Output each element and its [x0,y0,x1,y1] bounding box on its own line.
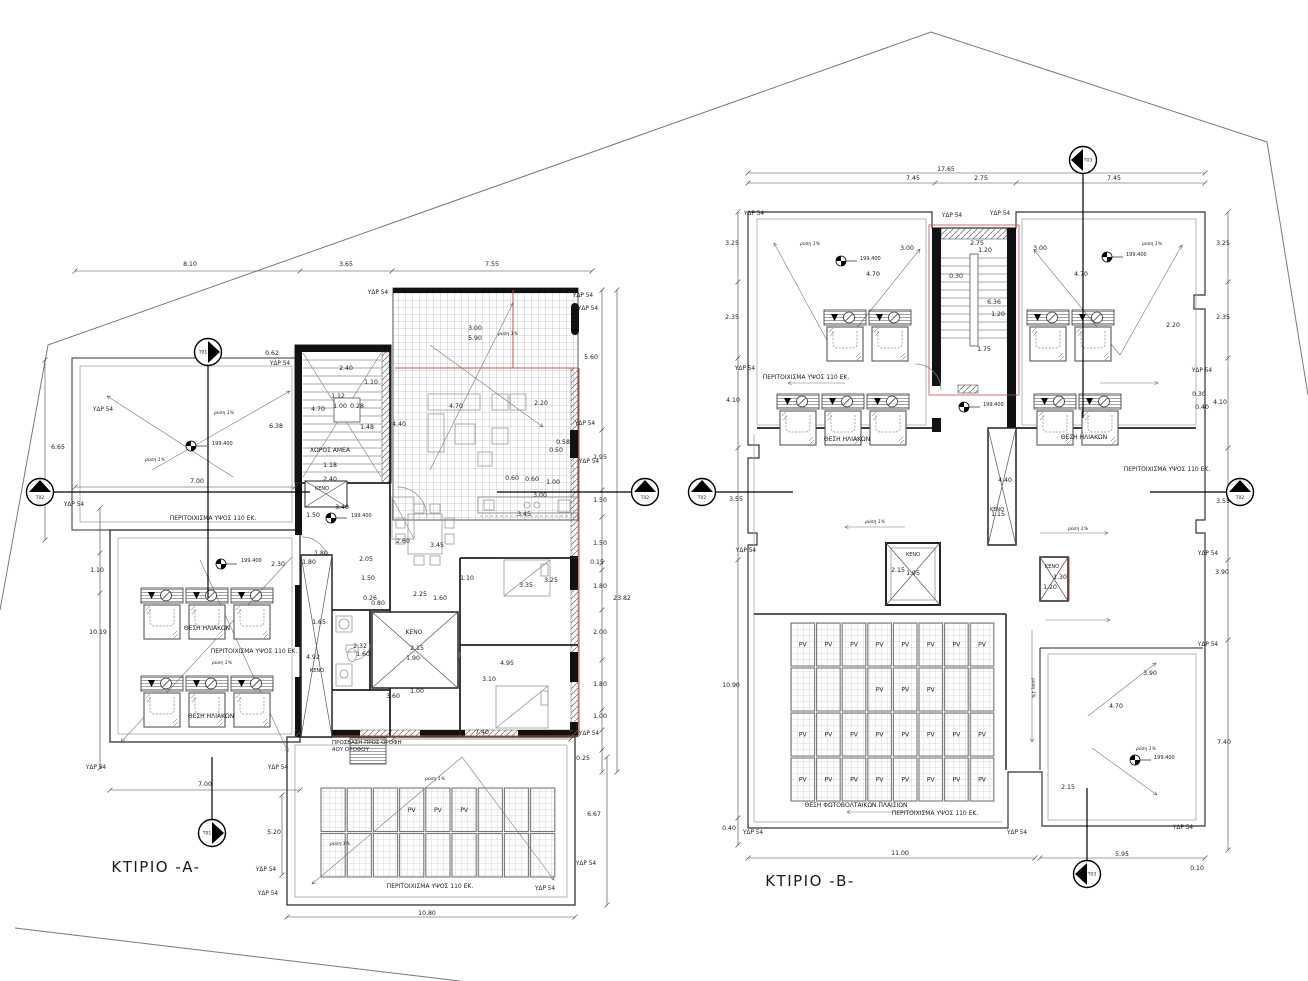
dimension-label: 3.65 [339,261,353,268]
hydrant-label: ΥΔΡ 54 [577,306,599,312]
dimension-label: 0.40 [722,825,736,832]
pv-panel-cell [426,834,450,878]
dimension-label: 1.00 [410,688,424,695]
pv-label: PV [927,732,936,739]
hydrant-label: ΥΔΡ 54 [85,765,107,771]
dimension-label: 7.00 [190,478,204,485]
floor-plan-sheet: PVPVPVPVPVPVPVPVPVPVPVPVPVPVPVPVPVPVPVPV… [0,0,1308,981]
slope-label: ρύση 1% [425,775,445,782]
dimension-label: 0.10 [1190,865,1204,872]
dimension-label: 6.67 [587,811,601,818]
section-marker-τ01: Τ01 [199,757,226,847]
area-label: ΚΕΝΟ [906,552,920,558]
dimension-label: 4.70 [311,406,325,413]
slope-label: ρύση 1% [800,240,820,247]
dimension-label: 4.70 [1074,271,1088,278]
slope-label: ρύση 1% [1142,240,1162,247]
area-label: ΧΩΡΟΣ ΑΜΕΑ [310,447,351,454]
hydrant-label: ΥΔΡ 54 [578,459,600,465]
dimension-label: 3.00 [900,245,914,252]
hydrant-label: ΥΔΡ 54 [941,213,963,219]
benchmark-icon [186,441,207,451]
pv-label: PV [825,642,834,649]
pv-panel-cell [817,668,841,711]
dimension-label: 1.50 [361,575,375,582]
section-marker-label: Τ02 [1235,495,1245,501]
dimension-label: 8.10 [183,261,197,268]
dimension-label: 1.75 [977,346,991,353]
hydrant-label: ΥΔΡ 54 [743,211,765,217]
dimension-label: 1.80 [593,681,607,688]
dimension-label: 3.00 [1033,245,1047,252]
dimension-label: 4.70 [1109,703,1123,710]
dimension-label: 4.10 [1213,399,1227,406]
dimension-label: 3.00 [533,492,547,499]
solar-heater-icon [231,676,273,727]
dimension-lines [43,171,1231,920]
solar-heater-icon [1072,310,1114,361]
hydrant-label: ΥΔΡ 54 [1172,825,1194,831]
dimension-label: 10.80 [418,910,436,917]
pv-panel-cell [321,788,345,832]
pv-label: PV [825,777,834,784]
dimension-label: 7.40 [1217,739,1231,746]
area-label: ΚΕΝΟ [1045,564,1059,570]
pv-label: PV [850,777,859,784]
pv-panel-cell [531,788,555,832]
dimension-label: 2.20 [534,400,548,407]
pv-label: PV [876,642,885,649]
dimension-label: 2.60 [396,538,410,545]
pv-label: PV [408,807,417,814]
dimension-line [615,288,620,775]
pv-label: PV [901,777,910,784]
elevation-label: 199.400 [983,402,1004,408]
pv-panel-cell [970,668,994,711]
hydrant-label: ΥΔΡ 54 [1197,551,1219,557]
dimension-label: 0.15 [590,559,604,566]
hydrant-label: ΥΔΡ 54 [92,407,114,413]
dimension-label: 1.80 [314,550,328,557]
pv-panel-cell [531,834,555,878]
area-label: 4ΟΥ ΟΡΟΦΟΥ [332,747,370,753]
dimension-line [1226,210,1231,853]
area-label: ΘΕΣΗ ΗΛΙΑΚΩΝ [824,436,870,443]
dimension-label: 1.50 [306,512,320,519]
dimension-label: 3.45 [517,511,531,518]
dimension-label: 4.92 [306,654,320,661]
dimension-label: 2.20 [1166,322,1180,329]
dimension-label: 6.65 [51,444,65,451]
solar-heater-icon [824,310,866,361]
dimension-label: 0.62 [265,350,279,357]
pv-panel-cell [504,834,528,878]
dimension-label: 5.90 [468,335,482,342]
pv-panel-cell [373,834,397,878]
dimension-label: 1.48 [360,424,374,431]
dimension-label: 2.40 [323,476,337,483]
pv-panel-cell [373,788,397,832]
dimension-label: 2.35 [1216,314,1230,321]
pv-label: PV [825,732,834,739]
area-label: ΠΡΟΣΒΑΣΗ ΠΡΟΣ ΟΡΟΦΗ [332,740,402,746]
dimension-label: 5.20 [267,829,281,836]
dimension-line [605,755,610,908]
dimension-label: 2.75 [970,240,984,247]
elevation-label: 199.400 [351,513,372,519]
dimension-label: 4.40 [998,477,1012,484]
dimension-label: 7.55 [485,261,499,268]
pv-label: PV [460,807,469,814]
section-marker-label: Τ02 [640,495,650,501]
dimension-line [73,485,298,490]
dimension-label: 4.70 [866,271,880,278]
hydrant-label: ΥΔΡ 54 [534,886,556,892]
building-b-title: ΚΤΙΡΙΟ -B- [765,872,855,890]
keno-shafts-b [886,428,1069,605]
pv-label: PV [850,642,859,649]
dimension-label: 0.60 [525,476,539,483]
dimension-label: 1.00 [546,479,560,486]
pv-label: PV [434,807,443,814]
area-label: ΚΕΝΟ [310,668,324,674]
section-marker-τ03: Τ03 [1070,147,1097,419]
hydrant-label: ΥΔΡ 54 [989,211,1011,217]
area-label: ΠΕΡΙΤΟΙΧΙΣΜΑ ΥΨΟΣ 110 ΕΚ. [892,810,979,817]
hydrant-label: ΥΔΡ 54 [572,293,594,299]
pv-label: PV [901,687,910,694]
pv-panel-cell [504,788,528,832]
dimension-label: 2.15 [410,645,424,652]
pv-label: PV [927,687,936,694]
dimension-label: 2.15 [891,567,905,574]
slope-label: ρύση 1% [1030,678,1037,698]
dimension-label: 2.15 [1061,784,1075,791]
pv-label: PV [953,777,962,784]
benchmark-icon [1102,252,1123,262]
dimension-label: 1.20 [991,311,1005,318]
area-label: ΠΕΡΙΤΟΙΧΙΣΜΑ ΥΨΟΣ 110 ΕΚ. [211,648,298,655]
dimension-label: 23.82 [613,595,631,602]
dimension-label: 1.80 [593,583,607,590]
pv-panel-cell [478,788,502,832]
dimension-label: 0.80 [371,600,385,607]
architectural-drawing: PVPVPVPVPVPVPVPVPVPVPVPVPVPVPVPVPVPVPVPV… [0,0,1308,981]
slope-arrows [107,243,1182,884]
pv-panel-cell [842,668,866,711]
dimension-label: 0.30 [1192,391,1206,398]
dimension-label: 0.30 [949,273,963,280]
area-label: ΘΕΣΗ ΦΩΤΟΒΟΛΤΑΙΚΩΝ ΠΛΑΙΣΙΩΝ [805,802,908,809]
benchmark-icon [836,256,857,266]
pv-label: PV [799,642,808,649]
section-marker-label: Τ01 [198,350,208,356]
pv-label: PV [876,687,885,694]
benchmark-icon [326,513,347,523]
dimension-label: 7.40 [475,729,489,736]
dimension-label: 11.00 [891,850,909,857]
elevation-label: 199.400 [1126,252,1147,258]
dimension-label: 7.45 [906,175,920,182]
pv-panel-cell [347,788,371,832]
hydrant-label: ΥΔΡ 54 [1006,830,1028,836]
pv-label: PV [876,777,885,784]
section-marker-label: Τ03 [1087,872,1097,878]
dimension-line [98,506,103,771]
solar-heater-icon [777,394,819,445]
dimension-label: 1.90 [406,655,420,662]
building-a-title: ΚΤΙΡΙΟ -A- [111,858,200,876]
elevation-label: 199.400 [860,256,881,262]
elevation-label: 199.400 [1154,755,1175,761]
solar-heater-icon [869,310,911,361]
dimension-label: 3.90 [1143,670,1157,677]
dimension-label: 3.25 [725,240,739,247]
dimension-label: 4.10 [726,397,740,404]
dimension-label: 10.19 [89,629,107,636]
hydrant-label: ΥΔΡ 54 [255,867,277,873]
elevation-label: 199.400 [241,558,262,564]
dimension-label: 3.55 [729,496,743,503]
section-marker-label: Τ01 [202,831,212,837]
area-label: ΘΕΣΗ ΗΛΙΑΚΩΝ [188,713,234,720]
pv-label: PV [799,732,808,739]
pv-label: PV [953,642,962,649]
slope-label: ρύση 1% [1068,525,1088,532]
slope-label: ρύση 1% [330,840,350,847]
dimension-label: 1.20 [1043,584,1057,591]
hydrant-label: ΥΔΡ 54 [63,502,85,508]
dimension-line [43,358,48,543]
dimension-line [73,269,595,274]
pv-label: PV [901,642,910,649]
section-marker-label: Τ02 [35,495,45,501]
dimension-label: 0.28 [350,403,364,410]
dimension-label: 3.00 [468,325,482,332]
hydrant-label: ΥΔΡ 54 [367,290,389,296]
pv-label: PV [850,732,859,739]
dimension-label: 3.45 [430,542,444,549]
dimension-label: 1.65 [312,619,326,626]
dimension-label: 0.50 [549,447,563,454]
dimension-label: 1.50 [593,540,607,547]
pv-panel-cell [478,834,502,878]
pv-label: PV [799,777,808,784]
dimension-label: 3.90 [1215,569,1229,576]
hydrant-label: ΥΔΡ 54 [269,361,291,367]
section-marker-label: Τ02 [697,495,707,501]
stairwell-b [915,225,1019,432]
dimension-label: 7.45 [1107,175,1121,182]
dimension-label: 7.00 [198,781,212,788]
hydrant-label: ΥΔΡ 54 [578,731,600,737]
dimension-label: 3.40 [335,504,349,511]
hydrant-label: ΥΔΡ 54 [574,421,596,427]
slope-label: ρύση 1% [498,330,518,337]
pv-label: PV [978,732,987,739]
area-label: ΠΕΡΙΤΟΙΧΙΣΜΑ ΥΨΟΣ 110 ΕΚ. [1124,466,1211,473]
dimension-label: 1.00 [333,403,347,410]
slope-label: ρύση 1% [212,659,232,666]
annotations: ΚΤΙΡΙΟ -A- ΚΤΙΡΙΟ -B- 8.103.657.550.626.… [27,147,1254,918]
section-marker-label: Τ03 [1083,158,1093,164]
solar-heater-icon [141,676,183,727]
section-marker-τ01: Τ01 [195,339,222,599]
dimension-label: 1.12 [331,393,345,400]
dimension-label: 1.10 [460,575,474,582]
area-label: ΠΕΡΙΤΟΙΧΙΣΜΑ ΥΨΟΣ 110 ΕΚ. [170,515,257,522]
dimension-label: 2.75 [974,175,988,182]
slope-label: ρύση 1% [865,518,885,525]
pv-panel-cell [945,668,969,711]
benchmark-icon [216,559,237,569]
dimension-label: 3.35 [519,582,533,589]
dimension-label: 1.10 [364,379,378,386]
dimension-label: 0.40 [1195,404,1209,411]
dimension-label: 1.20 [978,247,992,254]
slope-label: ρύση 1% [1136,745,1156,752]
dimension-label: 5.95 [1115,851,1129,858]
hydrant-label: ΥΔΡ 54 [267,765,289,771]
hydrant-label: ΥΔΡ 54 [1191,368,1213,374]
dimension-label: 6.38 [269,423,283,430]
pv-panel-cell [452,834,476,878]
pv-panel-cell [791,668,815,711]
section-marker-τ03: Τ03 [1074,788,1101,888]
dimension-label: 1.18 [323,462,337,469]
hydrant-label: ΥΔΡ 54 [575,861,597,867]
dimension-label: 3.25 [544,577,558,584]
pv-label: PV [927,777,936,784]
pv-panel-cell [321,834,345,878]
dimension-label: 1.10 [90,567,104,574]
dimension-label: 2.32 [353,643,367,650]
dimension-label: 5.60 [584,354,598,361]
dimension-label: 2.25 [413,591,427,598]
dimension-line [108,788,303,793]
slope-label: ρύση 1% [214,409,234,416]
section-marker-τ02: Τ02 [1150,479,1254,506]
pv-panel-cell [400,834,424,878]
solar-heater-icon [1027,310,1069,361]
area-label: ΚΕΝΟ [990,507,1004,513]
solar-heater-icon [141,588,183,639]
dimension-label: 2.05 [359,556,373,563]
dimension-label: 2.00 [593,629,607,636]
dimension-label: 10.90 [722,682,740,689]
dimension-line [600,288,605,775]
dimension-label: 1.30 [1053,574,1067,581]
dimension-label: 0.58 [556,439,570,446]
dimension-label: 1.50 [593,497,607,504]
slope-label: ρύση 1% [145,456,165,463]
hydrant-label: ΥΔΡ 54 [735,548,757,554]
hydrant-label: ΥΔΡ 54 [1197,642,1219,648]
dimension-label: 0.25 [576,755,590,762]
pv-label: PV [927,642,936,649]
dimension-label: 6.36 [987,299,1001,306]
dimension-label: 1.00 [593,713,607,720]
benchmark-icon [1130,755,1151,765]
dimension-label: 2.40 [339,365,353,372]
dimension-label: 1.95 [906,570,920,577]
elevation-label: 199.400 [212,441,233,447]
dimension-label: 3.60 [386,693,400,700]
dimension-label: 4.95 [500,660,514,667]
dimension-label: 17.65 [937,166,955,173]
dimension-label: 0.60 [505,475,519,482]
pv-label: PV [876,732,885,739]
area-label: ΠΕΡΙΤΟΙΧΙΣΜΑ ΥΨΟΣ 110 ΕΚ. [763,374,850,381]
dimension-label: 3.25 [1216,240,1230,247]
pv-label: PV [953,732,962,739]
dimension-label: 1.80 [302,559,316,566]
solar-heater-icon [867,394,909,445]
dimension-label: 1.60 [356,651,370,658]
area-label: ΚΕΝΟ [315,486,329,492]
hydrant-label: ΥΔΡ 54 [257,891,279,897]
pv-label: PV [901,732,910,739]
area-label: ΚΕΝΟ [406,629,423,636]
hydrant-label: ΥΔΡ 54 [742,830,764,836]
dimension-line [736,210,741,848]
dimension-label: 2.35 [725,314,739,321]
pv-panel-cell [347,834,371,878]
area-label: ΘΕΣΗ ΗΛΙΑΚΩΝ [184,625,230,632]
dimension-label: 1.60 [433,595,447,602]
dimension-label: 4.70 [449,403,463,410]
pv-label: PV [978,777,987,784]
hydrant-label: ΥΔΡ 54 [734,366,756,372]
area-label: ΠΕΡΙΤΟΙΧΙΣΜΑ ΥΨΟΣ 110 ΕΚ. [387,883,474,890]
benchmark-icon [959,402,980,412]
solar-heater-icon [231,588,273,639]
area-label: ΘΕΣΗ ΗΛΙΑΚΩΝ [1061,434,1107,441]
dimension-label: 4.40 [392,421,406,428]
dimension-label: 2.30 [271,561,285,568]
pv-label: PV [978,642,987,649]
dimension-label: 3.10 [482,676,496,683]
